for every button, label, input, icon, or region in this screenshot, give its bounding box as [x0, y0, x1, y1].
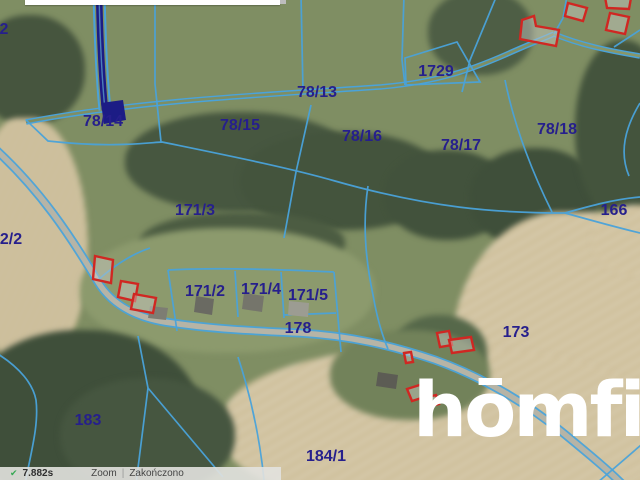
top-bar-handle[interactable]: [280, 0, 286, 4]
check-icon: ✔: [10, 467, 18, 480]
status-tool-label: Zoom: [91, 467, 117, 480]
map-viewport[interactable]: 78/9278/1478/1578/13172978/1678/1778/181…: [0, 0, 640, 480]
status-state-label: Zakończono: [129, 467, 183, 480]
stream-line: [99, 0, 126, 124]
status-separator: |: [122, 467, 125, 480]
status-time: 7.882s: [23, 467, 54, 480]
homfi-logo: hōmfi: [413, 372, 640, 448]
status-bar: ✔ 7.882s Zoom | Zakończono: [0, 467, 281, 480]
top-overlay-bar[interactable]: [25, 0, 280, 5]
